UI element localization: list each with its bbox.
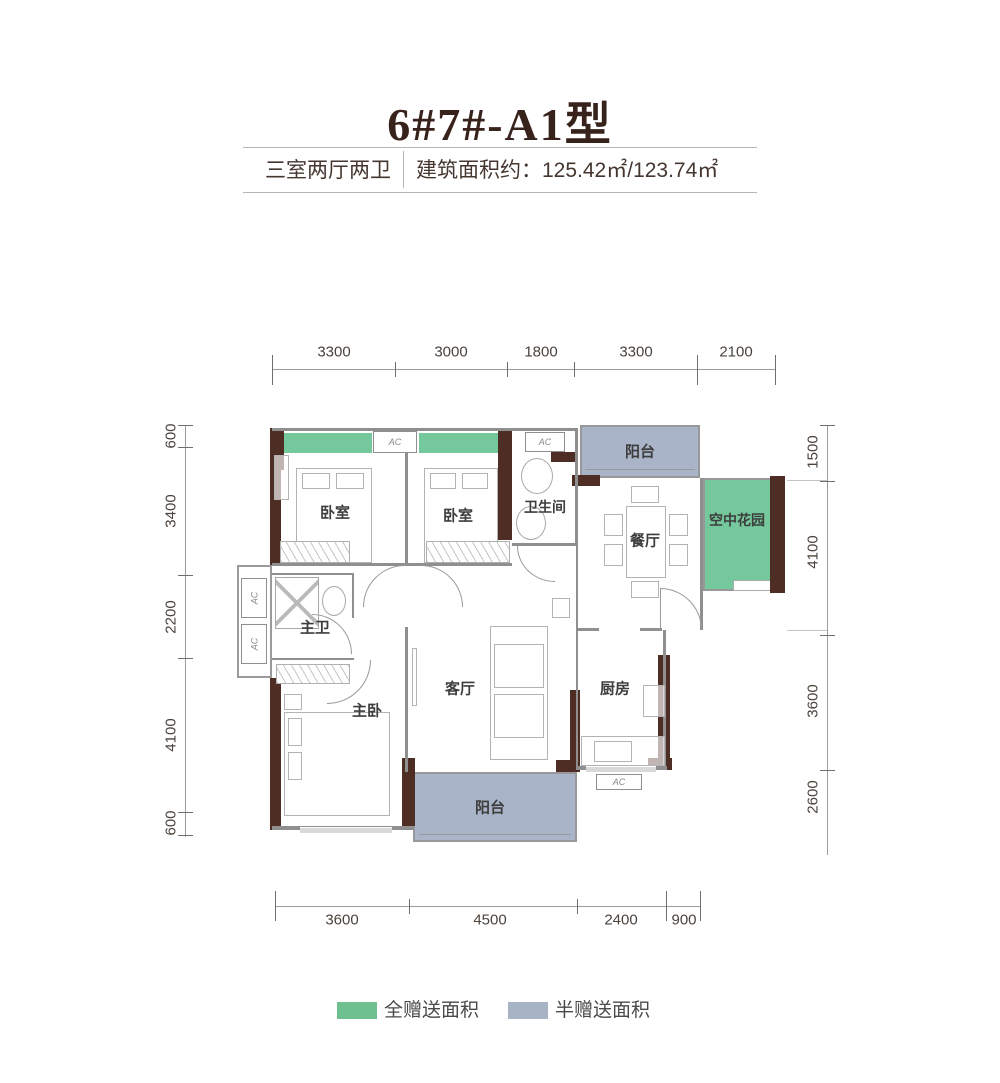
dim-label-top: 3000	[434, 344, 467, 361]
floor-plan-page: 6#7#-A1型 三室两厅两卫 建筑面积约：125.42㎡/123.74㎡ 33…	[0, 0, 1000, 1083]
wall-segment	[551, 452, 578, 462]
dim-tick	[574, 362, 575, 377]
chair	[669, 514, 688, 536]
tv-console	[412, 648, 417, 706]
dim-tick	[178, 447, 193, 448]
wall-masterbath-right	[352, 573, 354, 618]
dim-tick	[178, 812, 193, 813]
door-arc-bedroom2	[421, 565, 463, 607]
sofa-cushion	[494, 694, 544, 738]
room-label-bedroom1: 卧室	[320, 502, 350, 523]
sky-garden-notch	[733, 580, 771, 591]
header-divider-bottom	[243, 192, 757, 193]
chair	[604, 544, 623, 566]
room-label-sky-garden: 空中花园	[709, 510, 765, 530]
header-divider-top	[243, 147, 757, 148]
kitchen-sink	[594, 741, 632, 762]
dim-label-right: 3600	[805, 684, 822, 717]
ac-label: AC	[249, 638, 259, 651]
wardrobe	[276, 664, 350, 684]
dim-tick	[775, 355, 776, 385]
dim-label-bottom: 3600	[325, 912, 358, 929]
dim-tick	[178, 425, 193, 426]
dim-tick	[820, 770, 835, 771]
gift-window-strip-2	[419, 433, 501, 453]
room-label-master-bedroom: 主卧	[352, 700, 382, 721]
ac-unit-box: AC	[241, 578, 267, 618]
dim-label-left: 3400	[163, 494, 180, 527]
legend-swatch-full-gift	[337, 1002, 377, 1019]
wall-segment	[270, 678, 281, 830]
dim-label-right: 2600	[805, 780, 822, 813]
area-label: 建筑面积约：125.42㎡/123.74㎡	[416, 158, 718, 184]
door-arc-bathroom	[517, 546, 555, 582]
dim-tick	[409, 899, 410, 914]
door-arc-entry	[660, 588, 702, 630]
wardrobe	[280, 541, 350, 563]
door-arc-bedroom1	[363, 565, 405, 607]
layout-type-label: 三室两厅两卫	[265, 158, 391, 184]
dim-tick	[275, 891, 276, 921]
dim-label-top: 3300	[619, 344, 652, 361]
dim-tick	[272, 355, 273, 385]
dim-tick	[666, 891, 667, 921]
window-master-bedroom	[300, 827, 392, 834]
dim-tick	[700, 891, 701, 921]
balcony-bottom-rail	[419, 834, 571, 835]
extension-line	[787, 480, 827, 481]
legend-swatch-half-gift	[508, 1002, 548, 1019]
door-leaf-entry	[660, 588, 661, 630]
extension-line	[787, 630, 827, 631]
room-label-balcony-bottom: 阳台	[475, 797, 505, 818]
header-divider-vertical	[403, 151, 404, 188]
pillow	[288, 752, 302, 780]
dimension-line-right	[827, 425, 828, 855]
dim-label-top: 1800	[524, 344, 557, 361]
ac-label: AC	[613, 777, 626, 787]
chair	[604, 514, 623, 536]
wall-kitchen-top	[577, 628, 599, 631]
dimension-line-left	[185, 425, 186, 837]
wall-masterbath-top	[272, 573, 354, 575]
dim-tick	[395, 362, 396, 377]
dim-label-left: 600	[163, 810, 180, 835]
wall-kitchen-left	[576, 545, 578, 770]
balcony-top-rail	[585, 469, 695, 470]
dimension-line-bottom	[275, 906, 700, 907]
dim-label-top: 2100	[719, 344, 752, 361]
wall-masterbed-right	[405, 627, 408, 772]
wall-dining-right	[700, 478, 703, 593]
cabinet	[552, 598, 570, 618]
ac-unit-box: AC	[241, 624, 267, 664]
room-label-master-bath: 主卫	[300, 617, 330, 638]
stove	[643, 685, 665, 717]
dimension-line-top	[272, 369, 775, 370]
dim-label-top: 3300	[317, 344, 350, 361]
ac-unit-box: AC	[373, 431, 417, 453]
chair	[631, 486, 659, 503]
room-label-living: 客厅	[445, 678, 475, 699]
dim-label-left: 2200	[163, 600, 180, 633]
legend-label-full-gift: 全赠送面积	[384, 1002, 479, 1020]
dim-tick	[178, 658, 193, 659]
ac-unit-box: AC	[525, 432, 565, 452]
dim-tick	[820, 635, 835, 636]
sky-garden-zone	[703, 478, 772, 591]
toilet	[322, 586, 346, 616]
dim-label-bottom: 4500	[473, 912, 506, 929]
wall-entry	[640, 628, 662, 631]
dim-label-right: 1500	[805, 435, 822, 468]
nightstand	[284, 694, 302, 710]
pillow	[462, 473, 488, 489]
dim-tick	[178, 575, 193, 576]
ac-unit-box: AC	[596, 774, 642, 790]
pillow	[430, 473, 456, 489]
ac-label: AC	[539, 437, 552, 447]
legend-label-half-gift: 半赠送面积	[555, 1002, 650, 1020]
dim-label-bottom: 2400	[604, 912, 637, 929]
wall-segment	[770, 476, 785, 593]
dim-label-bottom: 900	[671, 912, 696, 929]
window-kitchen	[586, 766, 656, 773]
page-title: 6#7#-A1型	[0, 88, 1000, 154]
sofa-cushion	[494, 644, 544, 688]
dim-label-left: 4100	[163, 718, 180, 751]
wall-segment	[402, 758, 415, 826]
dim-label-left: 600	[163, 423, 180, 448]
dim-tick	[577, 899, 578, 914]
ac-label: AC	[249, 592, 259, 605]
pillow	[302, 473, 330, 489]
wall-bedrooms-bottom	[272, 563, 512, 566]
dim-label-right: 4100	[805, 535, 822, 568]
pillow	[336, 473, 364, 489]
dim-tick	[507, 362, 508, 377]
toilet	[521, 458, 553, 494]
gift-window-strip-1	[284, 433, 372, 453]
wardrobe	[426, 541, 510, 563]
wall-top	[272, 428, 578, 431]
room-label-bedroom2: 卧室	[443, 505, 473, 526]
pillow	[288, 718, 302, 746]
chair	[669, 544, 688, 566]
dim-tick	[697, 355, 698, 385]
wall	[575, 428, 578, 545]
room-label-kitchen: 厨房	[600, 678, 630, 699]
wall-segment	[498, 428, 512, 540]
dim-tick	[820, 425, 835, 426]
ac-label: AC	[389, 437, 402, 447]
room-label-balcony-top: 阳台	[625, 441, 655, 462]
room-label-dining: 餐厅	[630, 530, 660, 551]
cabinet	[274, 455, 289, 500]
chair	[631, 581, 659, 598]
wall-segment	[570, 690, 580, 768]
dim-tick	[820, 481, 835, 482]
dim-tick	[178, 835, 193, 836]
room-label-bathroom: 卫生间	[524, 497, 566, 517]
